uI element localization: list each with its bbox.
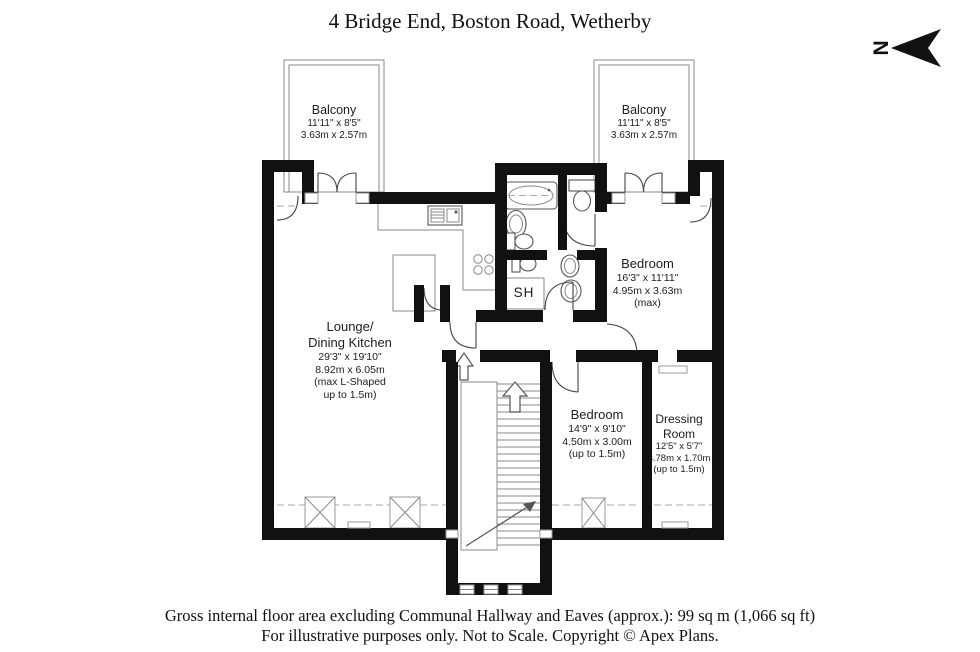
kitchen-sink-icon xyxy=(428,206,462,225)
floorplan-drawing xyxy=(0,0,980,652)
room-dims-ft: 11'11" x 8'5" xyxy=(282,118,386,130)
room-dims-ft: 11'11" x 8'5" xyxy=(592,118,696,130)
room-name: Bedroom xyxy=(590,256,705,272)
stairs-up-arrow-icon xyxy=(503,382,527,412)
room-note: (up to 1.5m) xyxy=(546,448,648,461)
room-dims-m: 3.63m x 2.57m xyxy=(282,130,386,142)
room-dims-m: 4.50m x 3.00m xyxy=(546,436,648,449)
room-name: Dressing xyxy=(643,412,715,427)
room-dims-ft: 14'9" x 9'10" xyxy=(546,423,648,436)
kitchen-hob-icon xyxy=(474,255,493,274)
room-note: (up to 1.5m) xyxy=(643,464,715,476)
toilet-ensuite-icon xyxy=(569,180,595,211)
bath-icon xyxy=(505,182,557,209)
shower-label: SH xyxy=(504,285,544,300)
room-dims-ft: 12'5" x 5'7" xyxy=(643,441,715,453)
toilet-bathroom-icon xyxy=(506,233,533,250)
balcony-left-label: Balcony 11'11" x 8'5" 3.63m x 2.57m xyxy=(282,103,386,143)
staircase xyxy=(461,382,540,550)
room-name: Dining Kitchen xyxy=(286,335,414,351)
room-dims-m: 8.92m x 6.05m xyxy=(286,364,414,377)
room-dims-m: 3.78m x 1.70m xyxy=(643,453,715,465)
floorplan-page: 4 Bridge End, Boston Road, Wetherby N xyxy=(0,0,980,652)
room-dims-ft: 29'3" x 19'10" xyxy=(286,351,414,364)
room-name: Balcony xyxy=(282,103,386,118)
footer-area-text: Gross internal floor area excluding Comm… xyxy=(0,606,980,626)
basin-shower-room-icon xyxy=(561,255,581,302)
room-dims-m: 3.63m x 2.57m xyxy=(592,130,696,142)
dressing-room-label: Dressing Room 12'5" x 5'7" 3.78m x 1.70m… xyxy=(643,412,715,476)
room-name: Room xyxy=(643,427,715,442)
room-name: Balcony xyxy=(592,103,696,118)
bedroom1-label: Bedroom 16'3" x 11'11" 4.95m x 3.63m (ma… xyxy=(590,256,705,310)
room-note: (max L-Shaped xyxy=(286,376,414,389)
balcony-right-label: Balcony 11'11" x 8'5" 3.63m x 2.57m xyxy=(592,103,696,143)
footer-disclaimer-text: For illustrative purposes only. Not to S… xyxy=(0,626,980,646)
room-note: (max) xyxy=(590,297,705,310)
room-name: Bedroom xyxy=(546,407,648,423)
lounge-label: Lounge/ Dining Kitchen 29'3" x 19'10" 8.… xyxy=(286,319,414,402)
room-dims-ft: 16'3" x 11'11" xyxy=(590,272,705,285)
room-dims-m: 4.95m x 3.63m xyxy=(590,285,705,298)
room-name: Lounge/ xyxy=(286,319,414,335)
room-note: up to 1.5m) xyxy=(286,389,414,402)
bedroom2-label: Bedroom 14'9" x 9'10" 4.50m x 3.00m (up … xyxy=(546,407,648,461)
